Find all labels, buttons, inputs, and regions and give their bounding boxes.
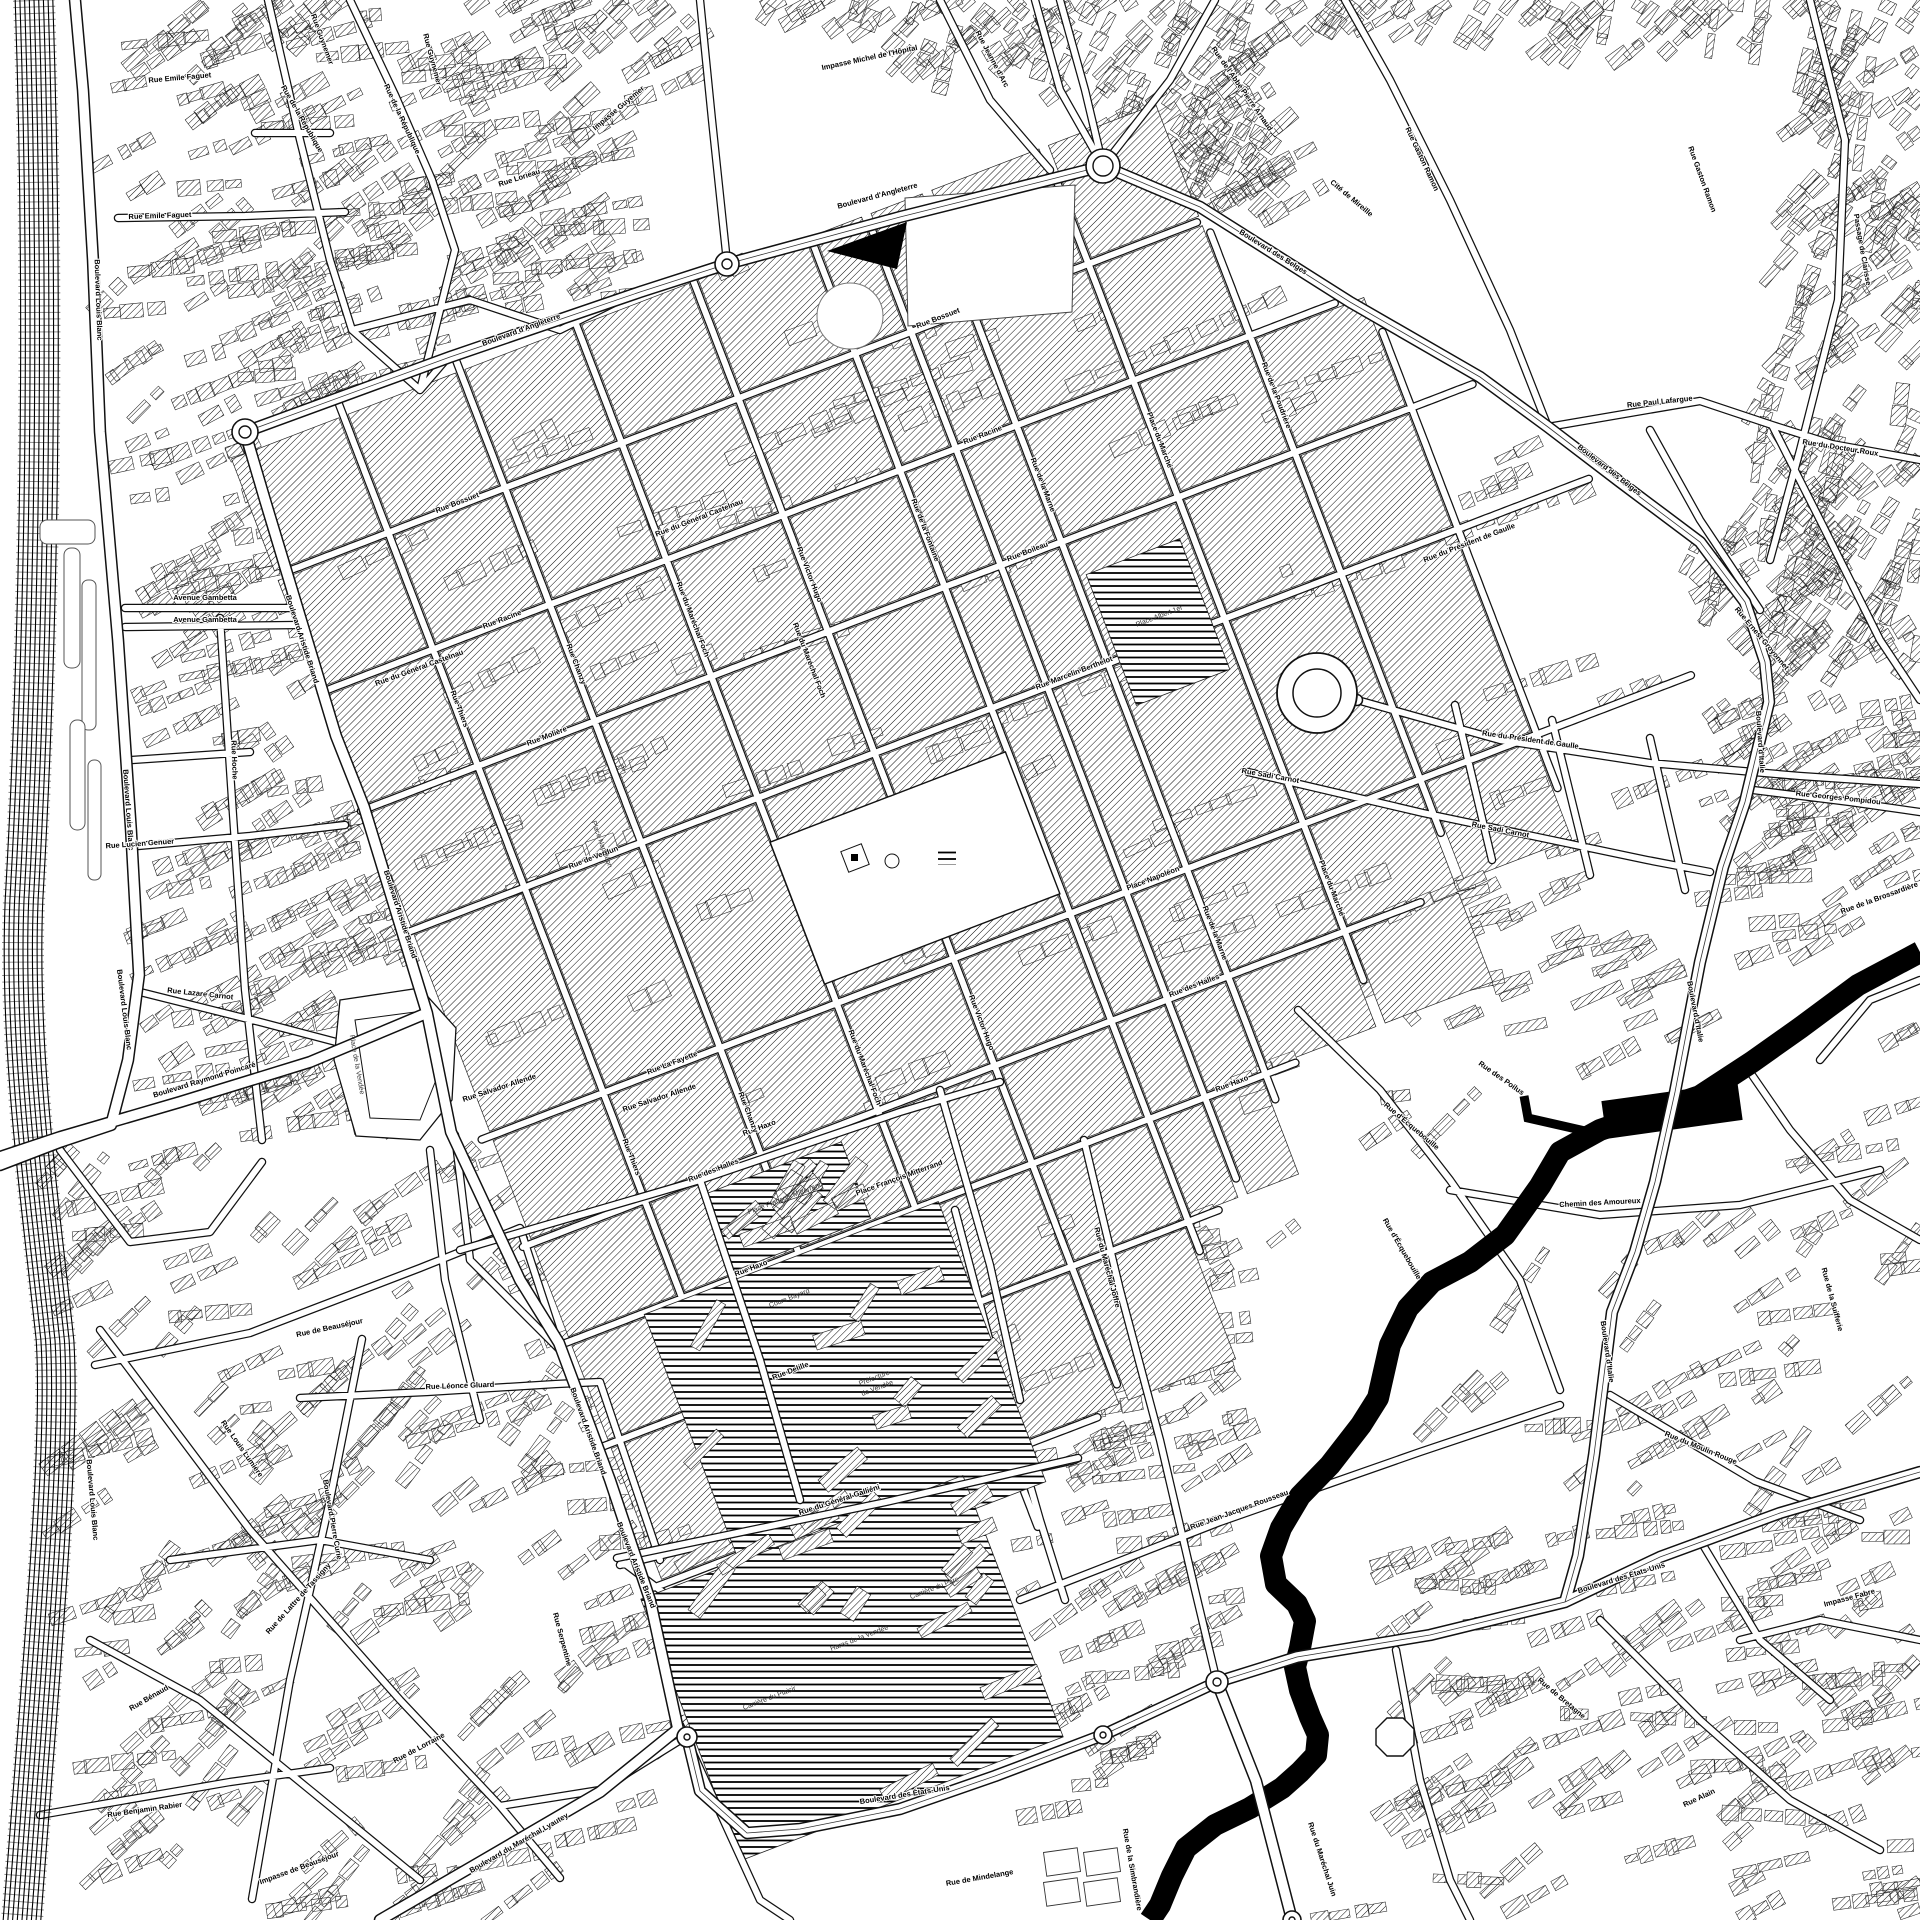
svg-text:Avenue Gambetta: Avenue Gambetta [173, 593, 237, 602]
svg-text:Avenue Gambetta: Avenue Gambetta [173, 615, 237, 624]
svg-text:Rue Hoche: Rue Hoche [229, 740, 239, 779]
